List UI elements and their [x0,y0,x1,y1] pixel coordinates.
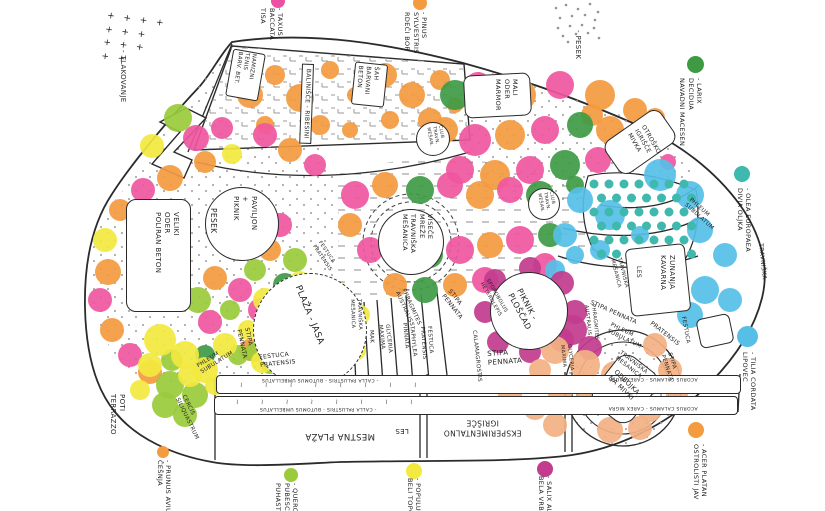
legend-label-quercus: - QUERCUS PUBESCENS PUHASTI HRAST [274,483,299,511]
band-label-glyceria-2: GLYCERIA MAXIMA [559,344,575,372]
zone-label-namizni-tenis: NAMIZNI TENIS BARV. BET. [231,51,257,86]
legend-label-tilia: - TILIA CORDATA LIPOVEC [740,352,757,411]
canal-text-right-bottom: ACORUS CALAMUS - CAREX NIGRA [574,404,732,410]
zone-label-sah: ŠAH BARVANI BETON [355,65,380,95]
legend-label-poti: POTI TERRAZZO [108,394,126,435]
park-plan: + + + + + + + + + + + + - TLAKOVANJE - T… [0,0,825,511]
legend-label-prunus: - PRUNUS AVIUM ČEŠNJA [155,460,172,511]
legend-label-acer: - ACER PLATAN OSTROLISTI JAV [691,444,708,500]
zone-label-eksperimentalno: EKSPERIMENTALNO IGRIŠČE [425,418,540,438]
legend-label-tlakovanje: - TLAKOVANJE [118,50,127,103]
legend-dot-prunus [157,446,169,458]
legend-dot-acer [688,422,704,438]
band-label-stipa-h: STIPA PENNATA [487,348,523,369]
zone-label-club-1: CLUB TRAVN. MEŠAN. [425,125,446,147]
zone-label-club-2: CLUB TRAVN. MEŠAN. [536,191,557,213]
zone-label-mestna-plaza: MESTNA PLAŽA [296,430,384,441]
zone-label-veliki-oder: VELIKI ODER POLIRAN BETON [153,212,180,273]
canal-wave-marks-1: ≀ ≀ ≀ ≀ ≀ ≀ ≀ ≀ [240,381,427,389]
zone-label-pesek: PESEK [208,208,218,233]
band-label-glyceria-1: GLYCERIA MAXIMA [376,324,393,354]
canal-wave-marks-2: ≀ ≀ ≀ ≀ ≀ ≀ ≀ ≀ [236,398,423,406]
paving-plus-marks: + + + + + + + + + + + + [100,10,167,72]
legend-dot-populus [406,463,422,479]
legend-dot-larix [687,56,704,73]
legend-dot-tilia [737,326,758,347]
zone-label-paviljon: PAVILJON + PIKNIK [231,196,258,230]
canal-text-right-top: ACORUS CALAMUS - CAREX NIGRA [572,375,734,381]
legend-label-larix: - LARIX DECIDUA NAVADNI MACESEN [678,78,703,146]
legend-dot-olea [734,166,750,182]
legend-label-pesek: - PESEK [573,30,582,59]
zone-label-les-1: LES [634,266,642,278]
legend-label-pinus: - PINUS SYLVESTRIS RDEČI BOR [403,12,428,54]
band-label-mak: MAK [367,330,375,343]
zone-label-visece-mreze: VISEČE MREŽE TRAVNIŠKA MEŠANICA [400,214,434,253]
legend-label-populus: - POPULUS BELI TOPOL [405,478,422,511]
zone-label-mali-oder: MALI ODER MARMOR [494,79,519,111]
band-label-travniska-mesanica: TRAVNIŠKA MEŠANICA [349,299,363,330]
legend-dot-salix [537,461,553,477]
band-label-festuca-2: FESTUCA PRATENSIS [418,326,435,360]
legend-label-taxus: - TAXUS BACCATA TISA [259,8,284,40]
zone-label-zunanja-kavarna: ZUNANJA KAVARNA [658,255,676,290]
legend-label-olea: - OLEA EUROPAEA DIVJA OLJKA [735,188,752,252]
zone-label-les-2: LES [392,426,412,435]
legend-label-salix: - SALIX ALBA BELA VRBA [536,476,553,511]
legend-dot-quercus [284,468,298,482]
